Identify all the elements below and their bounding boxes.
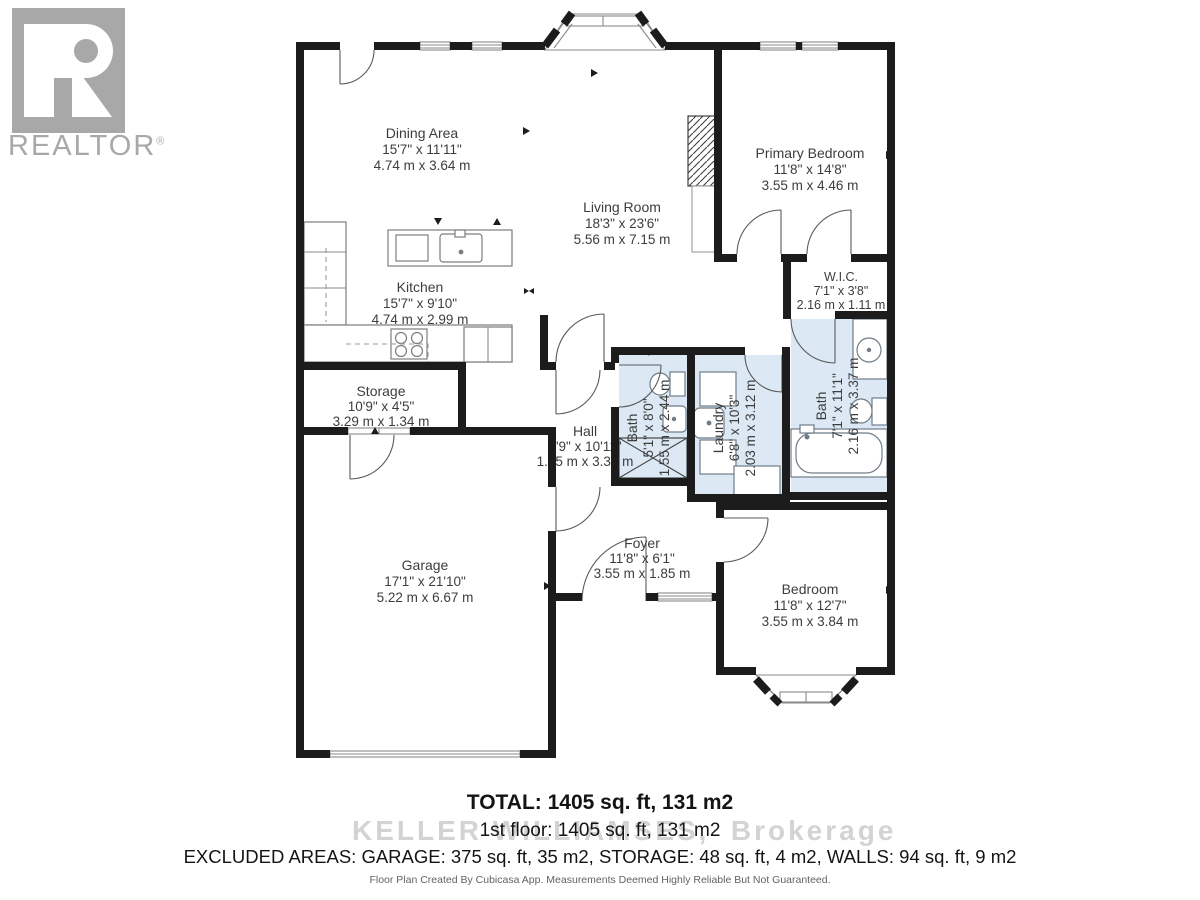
svg-text:15'7" x 9'10": 15'7" x 9'10" xyxy=(383,296,457,311)
floor-plan: Dining Area 15'7" x 11'11" 4.74 m x 3.64… xyxy=(0,0,1200,900)
svg-text:Living Room: Living Room xyxy=(583,199,661,215)
svg-text:1.55 m x 2.44 m: 1.55 m x 2.44 m xyxy=(657,380,672,477)
svg-text:Foyer: Foyer xyxy=(624,535,660,551)
svg-text:15'7" x 11'11": 15'7" x 11'11" xyxy=(382,142,462,157)
label-wic: W.I.C. 7'1" x 3'8" 2.16 m x 1.11 m xyxy=(797,270,886,312)
svg-text:Hall: Hall xyxy=(573,423,597,439)
total-area-text: TOTAL: 1405 sq. ft, 131 m2 xyxy=(0,791,1200,815)
first-floor-area-text: 1st floor: 1405 sq. ft, 131 m2 xyxy=(0,820,1200,842)
svg-text:Bath: Bath xyxy=(624,414,640,443)
svg-text:5.22 m x 6.67 m: 5.22 m x 6.67 m xyxy=(377,590,474,605)
svg-text:Kitchen: Kitchen xyxy=(397,279,444,295)
fireplace xyxy=(688,116,716,252)
window xyxy=(802,42,838,50)
svg-text:5.56 m x 7.15 m: 5.56 m x 7.15 m xyxy=(574,232,671,247)
svg-text:2.16 m x 3.37 m: 2.16 m x 3.37 m xyxy=(846,358,861,455)
svg-text:2.03 m x 3.12 m: 2.03 m x 3.12 m xyxy=(743,380,758,477)
svg-text:Bedroom: Bedroom xyxy=(782,581,839,597)
label-primary-bedroom: Primary Bedroom 11'8" x 14'8" 3.55 m x 4… xyxy=(756,145,865,193)
svg-text:7'1" x 11'1": 7'1" x 11'1" xyxy=(830,373,845,439)
svg-text:3.29 m x 1.34 m: 3.29 m x 1.34 m xyxy=(333,414,430,429)
label-foyer: Foyer 11'8" x 6'1" 3.55 m x 1.85 m xyxy=(594,535,691,581)
svg-text:Dining Area: Dining Area xyxy=(386,125,459,141)
garage-door xyxy=(330,751,520,757)
bay-window-top xyxy=(545,13,665,50)
svg-text:Garage: Garage xyxy=(402,557,449,573)
label-dining: Dining Area 15'7" x 11'11" 4.74 m x 3.64… xyxy=(374,125,471,173)
excluded-areas-text: EXCLUDED AREAS: GARAGE: 375 sq. ft, 35 m… xyxy=(0,846,1200,868)
svg-text:3.55 m x 4.46 m: 3.55 m x 4.46 m xyxy=(762,178,859,193)
svg-text:10'9" x 4'5": 10'9" x 4'5" xyxy=(348,399,415,414)
svg-text:Primary Bedroom: Primary Bedroom xyxy=(756,145,865,161)
svg-text:Bath: Bath xyxy=(813,392,829,421)
fridge-icon xyxy=(464,327,512,362)
svg-text:3.55 m x 3.84 m: 3.55 m x 3.84 m xyxy=(762,614,859,629)
svg-text:4'9" x 10'11": 4'9" x 10'11" xyxy=(548,439,621,454)
label-living: Living Room 18'3" x 23'6" 5.56 m x 7.15 … xyxy=(574,199,671,247)
svg-text:Storage: Storage xyxy=(356,383,405,399)
svg-text:2.16 m x 1.11 m: 2.16 m x 1.11 m xyxy=(797,298,886,312)
window xyxy=(760,42,796,50)
svg-text:Laundry: Laundry xyxy=(710,403,726,454)
disclaimer-text: Floor Plan Created By Cubicasa App. Meas… xyxy=(0,874,1200,886)
kitchen-island xyxy=(388,230,512,266)
svg-text:6'8" x 10'3": 6'8" x 10'3" xyxy=(727,395,742,462)
label-kitchen: Kitchen 15'7" x 9'10" 4.74 m x 2.99 m xyxy=(372,279,469,327)
label-storage: Storage 10'9" x 4'5" 3.29 m x 1.34 m xyxy=(333,383,430,429)
svg-text:W.I.C.: W.I.C. xyxy=(824,270,858,284)
floor-plan-page: REALTOR® xyxy=(0,0,1200,900)
window xyxy=(472,42,502,50)
window-sidelight xyxy=(658,593,712,601)
label-garage: Garage 17'1" x 21'10" 5.22 m x 6.67 m xyxy=(377,557,474,605)
svg-text:7'1" x 3'8": 7'1" x 3'8" xyxy=(814,284,869,298)
svg-text:18'3" x 23'6": 18'3" x 23'6" xyxy=(585,216,659,231)
svg-text:17'1" x 21'10": 17'1" x 21'10" xyxy=(384,574,466,589)
window xyxy=(420,42,450,50)
svg-text:3.55 m x 1.85 m: 3.55 m x 1.85 m xyxy=(594,566,691,581)
svg-text:4.74 m x 2.99 m: 4.74 m x 2.99 m xyxy=(372,312,469,327)
svg-text:11'8" x 14'8": 11'8" x 14'8" xyxy=(773,162,846,177)
svg-text:5'1" x 8'0": 5'1" x 8'0" xyxy=(641,398,656,457)
svg-text:11'8" x 12'7": 11'8" x 12'7" xyxy=(773,598,846,613)
label-bedroom: Bedroom 11'8" x 12'7" 3.55 m x 3.84 m xyxy=(762,581,859,629)
svg-text:4.74 m x 3.64 m: 4.74 m x 3.64 m xyxy=(374,158,471,173)
bay-window-bottom xyxy=(756,675,856,704)
svg-text:11'8" x 6'1": 11'8" x 6'1" xyxy=(609,551,675,566)
